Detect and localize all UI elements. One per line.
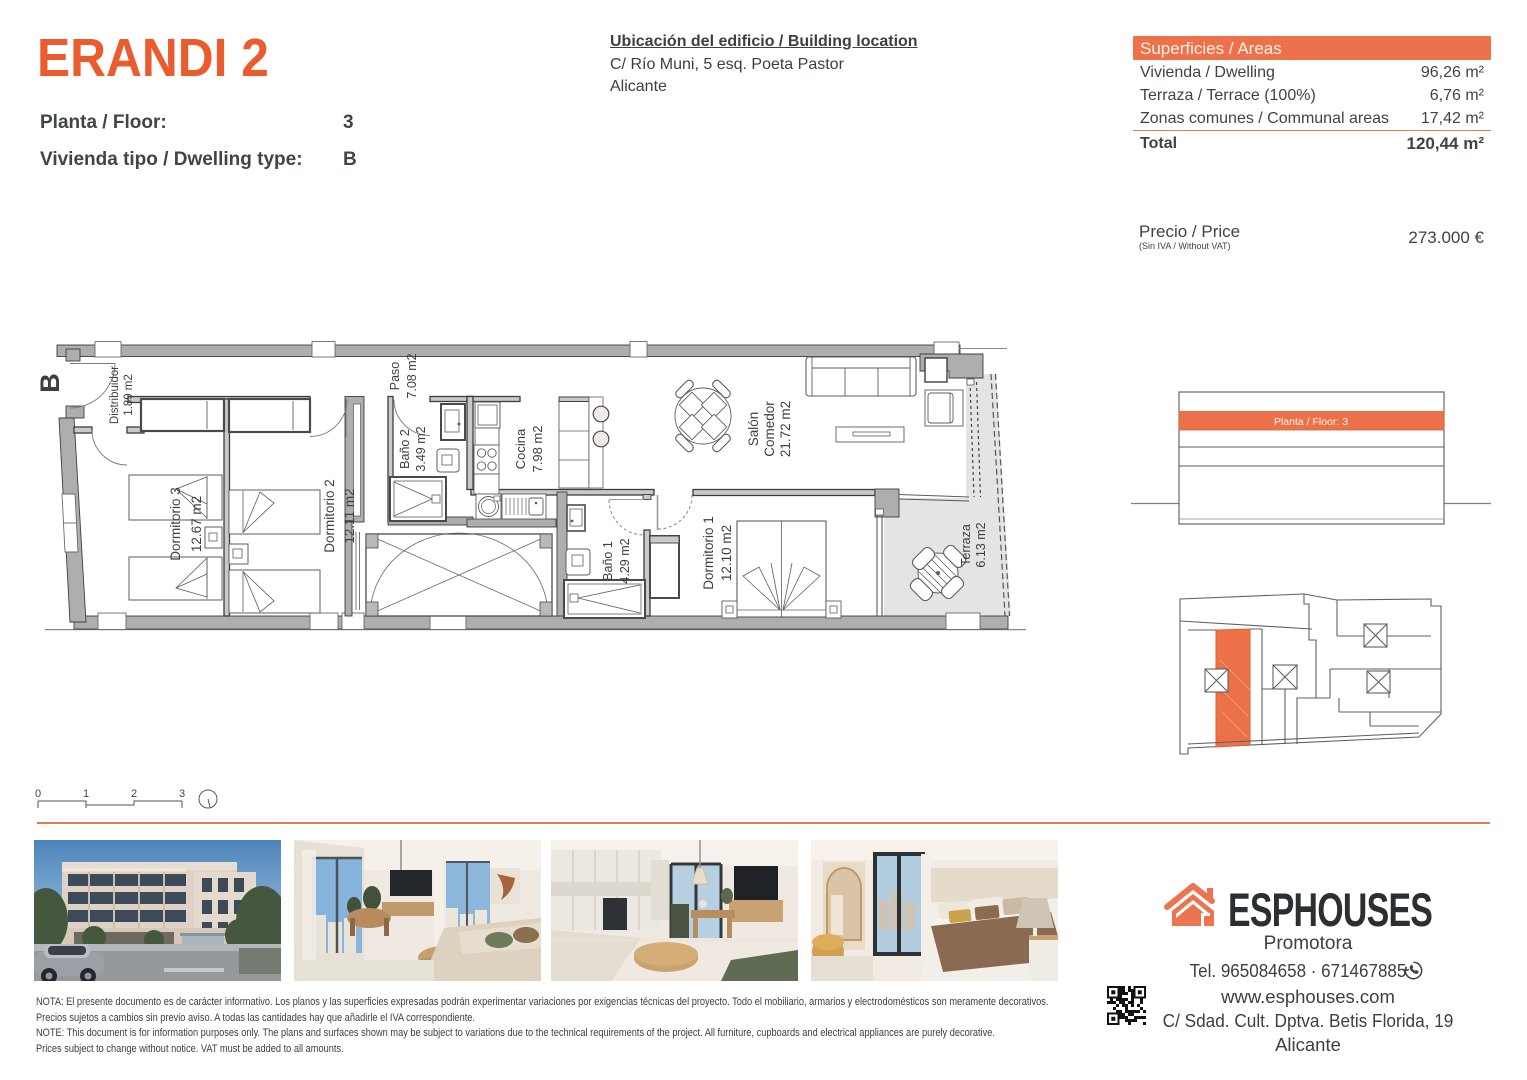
svg-text:3: 3 <box>179 788 185 800</box>
svg-text:Cocina: Cocina <box>513 428 528 469</box>
svg-text:12.11 m2: 12.11 m2 <box>342 488 357 543</box>
svg-text:4.29 m2: 4.29 m2 <box>618 538 632 583</box>
svg-text:Paso: Paso <box>388 362 402 391</box>
svg-text:Comedor: Comedor <box>762 401 777 457</box>
svg-text:Baño 2: Baño 2 <box>398 429 412 469</box>
svg-text:Dormitorio 3: Dormitorio 3 <box>168 487 183 561</box>
svg-text:7.98 m2: 7.98 m2 <box>530 426 545 473</box>
svg-text:Distribuidor: Distribuidor <box>109 366 121 424</box>
svg-text:12.10 m2: 12.10 m2 <box>719 525 734 581</box>
svg-text:1: 1 <box>83 788 89 800</box>
svg-text:Dormitorio 1: Dormitorio 1 <box>701 516 716 590</box>
svg-text:12.67 m2: 12.67 m2 <box>189 496 204 552</box>
svg-text:B: B <box>35 373 65 393</box>
svg-text:1.89 m2: 1.89 m2 <box>123 374 135 416</box>
svg-text:0: 0 <box>35 788 41 800</box>
svg-text:Dormitorio 2: Dormitorio 2 <box>322 479 337 553</box>
svg-text:21.72 m2: 21.72 m2 <box>778 401 793 457</box>
svg-text:Terraza: Terraza <box>959 524 973 566</box>
svg-text:7.08 m2: 7.08 m2 <box>405 353 419 398</box>
svg-text:2: 2 <box>131 788 137 800</box>
svg-text:Salón: Salón <box>746 412 761 447</box>
svg-text:Baño 1: Baño 1 <box>601 541 615 581</box>
svg-text:3.49 m2: 3.49 m2 <box>414 426 428 471</box>
svg-text:Planta / Floor: 3: Planta / Floor: 3 <box>1274 416 1348 428</box>
svg-text:6.13 m2: 6.13 m2 <box>974 522 988 567</box>
